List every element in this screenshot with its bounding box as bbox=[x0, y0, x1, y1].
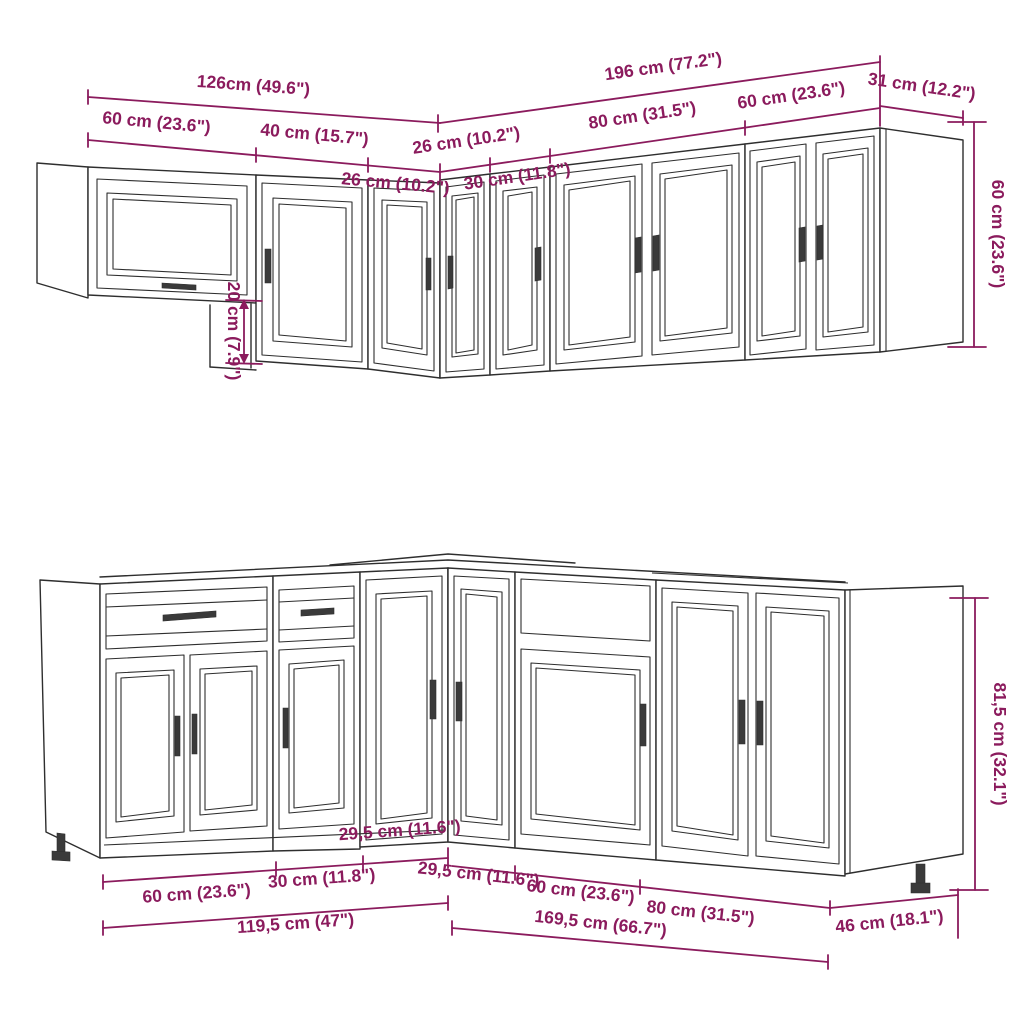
dim-lower-side-depth: 46 cm (18.1") bbox=[834, 905, 944, 936]
door-handle bbox=[535, 247, 541, 281]
door-handle bbox=[799, 227, 805, 262]
upper-cabinet-40 bbox=[256, 175, 368, 369]
dim-lower-total-left: 119,5 cm (47") bbox=[236, 909, 354, 937]
upper-left-side-panel bbox=[37, 163, 88, 298]
door-handle bbox=[653, 235, 659, 271]
door-handle bbox=[175, 716, 180, 756]
dim-upper-side-depth: 31 cm (12.2") bbox=[867, 68, 977, 103]
dim-upper-height: 60 cm (23.6") bbox=[988, 180, 1008, 289]
upper-corner-door-26-right bbox=[440, 174, 490, 378]
door-handle bbox=[430, 680, 436, 719]
door-handle bbox=[635, 237, 641, 273]
door-handle bbox=[192, 714, 197, 754]
base-cabinet-60-left bbox=[100, 576, 273, 858]
cabinet-dimension-diagram: 126cm (49.6") 196 cm (77.2") 60 cm (23.6… bbox=[0, 0, 1024, 1024]
dim-upper-80: 80 cm (31.5") bbox=[587, 97, 697, 132]
upper-corner-door-26-left bbox=[368, 180, 440, 378]
door-handle bbox=[817, 225, 823, 260]
door-handle bbox=[265, 249, 271, 283]
dim-lower-295-right: 29,5 cm (11.6") bbox=[417, 857, 541, 890]
dim-upper-26-right: 26 cm (10.2") bbox=[411, 122, 521, 157]
dim-lower-60-left: 60 cm (23.6") bbox=[142, 879, 252, 907]
base-sink-cabinet-60 bbox=[515, 572, 656, 860]
door-handle bbox=[283, 708, 288, 748]
base-cabinet-assembly bbox=[40, 554, 963, 893]
upper-cabinet-80 bbox=[550, 144, 745, 371]
dim-upper-offset: 20 cm (7.9") bbox=[224, 282, 244, 381]
base-right-side-panel bbox=[845, 586, 963, 874]
dim-upper-60-right: 60 cm (23.6") bbox=[736, 77, 846, 112]
door-handle bbox=[739, 700, 745, 744]
upper-cabinet-60-right bbox=[745, 128, 880, 360]
base-cabinet-30 bbox=[273, 572, 360, 851]
dim-upper-total-left: 126cm (49.6") bbox=[196, 71, 311, 99]
base-corner-door-right bbox=[448, 568, 515, 848]
base-cabinet-80 bbox=[652, 573, 848, 876]
upper-right-side-panel bbox=[880, 128, 963, 352]
dim-upper-60-left: 60 cm (23.6") bbox=[102, 107, 212, 137]
base-left-side-panel bbox=[40, 580, 100, 858]
door-handle bbox=[757, 701, 763, 745]
door-handle bbox=[448, 256, 453, 289]
upper-cabinet-assembly bbox=[37, 128, 963, 378]
dim-upper-40: 40 cm (15.7") bbox=[260, 119, 370, 149]
dim-lower-30: 30 cm (11.8") bbox=[267, 864, 376, 891]
door-handle bbox=[456, 682, 462, 721]
dim-upper-total-right: 196 cm (77.2") bbox=[603, 48, 723, 84]
upper-cabinet-30 bbox=[490, 167, 550, 375]
dim-lower-height: 81,5 cm (32.1") bbox=[990, 682, 1010, 805]
door-handle bbox=[640, 704, 646, 746]
door-handle bbox=[426, 258, 431, 290]
base-corner-door-left bbox=[360, 568, 448, 847]
diagram-canvas: 126cm (49.6") 196 cm (77.2") 60 cm (23.6… bbox=[0, 0, 1024, 1024]
